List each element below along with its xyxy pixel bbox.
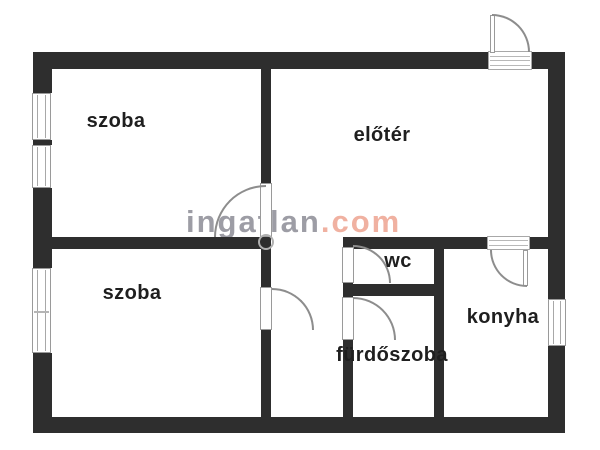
window-icon xyxy=(32,145,51,188)
wall-szoba-eloter xyxy=(261,69,271,183)
furdoszoba-door-arc-icon xyxy=(353,297,396,340)
window-icon xyxy=(548,299,566,346)
watermark-tld-text: .com xyxy=(321,204,401,239)
room-label-szoba-bottom: szoba xyxy=(103,282,162,305)
room-label-konyha: konyha xyxy=(467,306,539,329)
wall-corridor-bathroom-jamb xyxy=(343,283,353,297)
wall-bathroom-konyha xyxy=(434,249,444,417)
wall-bottom xyxy=(33,417,565,433)
wall-eloter-konyha-jamb xyxy=(530,237,548,249)
wall-wc-furdoszoba xyxy=(353,284,434,296)
szoba-top-door-arc-icon xyxy=(214,185,266,237)
wall-top-left-segment xyxy=(33,52,488,69)
wall-szoba-szoba xyxy=(52,237,271,249)
room-label-szoba-top: szoba xyxy=(87,110,146,133)
konyha-door-arc-icon xyxy=(490,250,527,287)
konyha-threshold-icon xyxy=(487,236,530,250)
room-label-eloter: előtér xyxy=(354,124,411,147)
szoba-bottom-door-arc-icon xyxy=(272,288,314,330)
floor-plan: ingatlan.com xyxy=(0,0,600,450)
door-pivot-icon xyxy=(258,234,274,250)
window-icon xyxy=(32,268,51,353)
wall-right-segment xyxy=(548,52,565,300)
wall-szoba-corridor xyxy=(261,330,271,417)
entrance-door-arc-icon xyxy=(492,14,530,52)
wall-left-segment xyxy=(33,52,52,93)
wall-szoba-corridor xyxy=(261,249,271,287)
szoba-bottom-door-icon xyxy=(260,287,272,330)
wall-left-segment xyxy=(33,188,52,268)
entrance-threshold-icon xyxy=(488,51,532,70)
room-label-furdoszoba: fürdőszoba xyxy=(336,344,448,367)
window-icon xyxy=(32,93,51,140)
room-label-wc: wc xyxy=(384,250,411,273)
